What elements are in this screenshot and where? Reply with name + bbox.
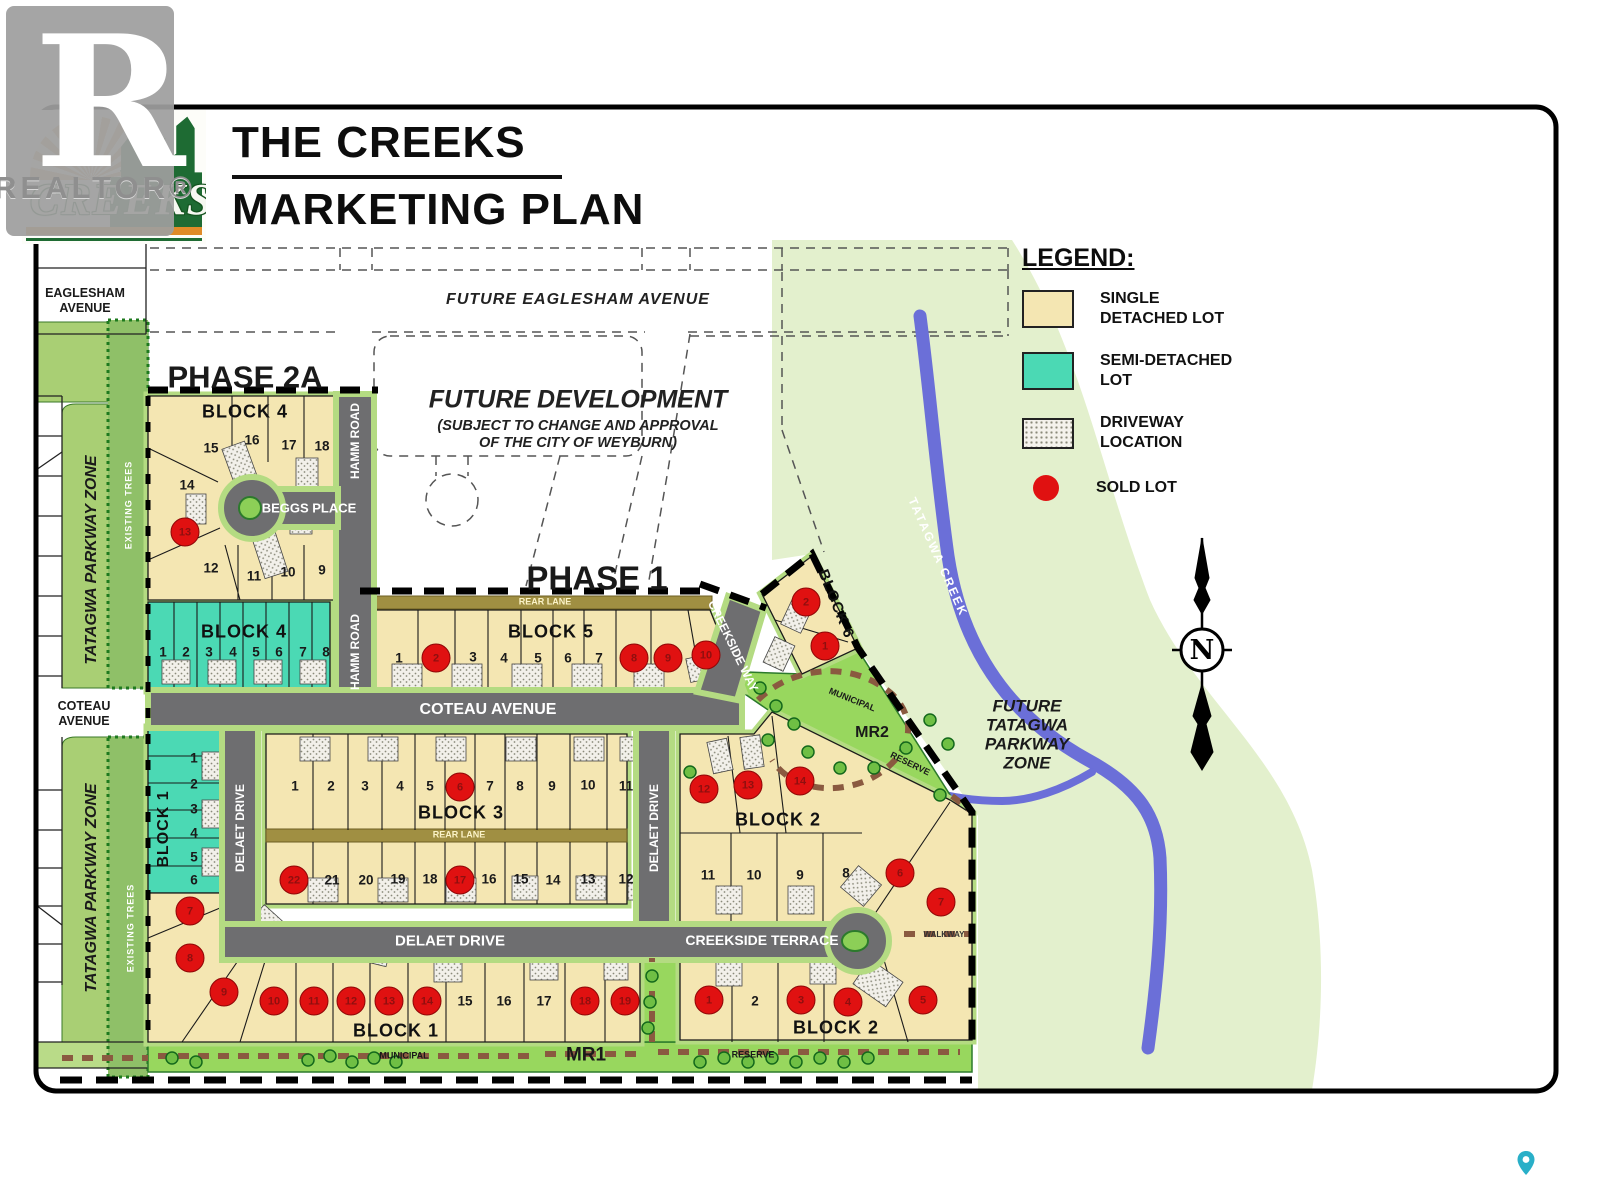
lot-number: 6: [275, 645, 283, 660]
future-eaglesham-label: FUTURE EAGLESHAM AVENUE: [446, 292, 710, 308]
sold-lot-marker: 9: [654, 644, 683, 673]
beggs-place-label: BEGGS PLACE: [262, 502, 357, 515]
lot-number: 17: [281, 438, 296, 453]
block-label: BLOCK 2: [793, 1018, 879, 1039]
sold-lot-marker: 14: [786, 767, 815, 796]
future-tatagwa-label: TATAGWA: [986, 717, 1068, 734]
coteau-avenue-label: COTEAU AVENUE: [420, 702, 557, 718]
sold-lot-marker: 10: [692, 641, 721, 670]
hamm-road-label: HAMM ROAD: [349, 614, 361, 690]
delaet-drive-label: DELAET DRIVE: [395, 934, 505, 949]
lot-number: 4: [500, 651, 508, 666]
lot-number: 9: [796, 868, 804, 883]
existing-trees-label: EXISTING TREES: [125, 461, 134, 550]
lot-number: 3: [361, 779, 369, 794]
lot-number: 15: [457, 994, 472, 1009]
block-label: BLOCK 3: [418, 803, 504, 824]
walkway-label: WALKWAY: [923, 931, 964, 939]
lot-number: 2: [327, 779, 335, 794]
sold-lot-marker: 14: [413, 987, 442, 1016]
legend-item-semi-detached: SEMI-DETACHED LOT: [1022, 351, 1232, 391]
sold-lot-marker: 1: [811, 632, 840, 661]
lot-number: 3: [469, 650, 477, 665]
delaet-drive-west-label: DELAET DRIVE: [234, 784, 246, 872]
lot-number: 6: [190, 873, 198, 888]
lot-number: 1: [159, 645, 167, 660]
sold-lot-marker: 2: [422, 644, 451, 673]
delaet-drive-east-label: DELAET DRIVE: [648, 784, 660, 872]
sold-lot-marker: 6: [446, 773, 475, 802]
lot-number: 12: [618, 872, 633, 887]
legend: LEGEND: SINGLE DETACHED LOT SEMI-DETACHE…: [1022, 244, 1232, 523]
lot-number: 7: [299, 645, 307, 660]
lot-number: 5: [426, 779, 434, 794]
lot-number: 2: [182, 645, 190, 660]
coteau-avenue-west-label: AVENUE: [58, 715, 109, 728]
sold-lot-marker: 13: [375, 987, 404, 1016]
future-tatagwa-label: PARKWAY: [985, 736, 1069, 753]
lot-number: 16: [244, 433, 259, 448]
sold-lot-marker: 4: [834, 988, 863, 1017]
hamm-road-label: HAMM ROAD: [349, 403, 361, 479]
future-development-sub1: (SUBJECT TO CHANGE AND APPROVAL: [437, 419, 718, 434]
lot-number: 1: [190, 751, 198, 766]
driveway-swatch: [1022, 418, 1074, 449]
sold-lot-marker: 17: [446, 866, 475, 895]
lot-number: 21: [324, 873, 339, 888]
lot-number: 18: [422, 872, 437, 887]
mr2-label: MR2: [855, 725, 889, 741]
lot-number: 12: [203, 561, 218, 576]
title-line-2: MARKETING PLAN: [232, 185, 644, 235]
realtor-label: REALTOR®: [0, 170, 196, 206]
existing-trees-label: EXISTING TREES: [127, 884, 136, 973]
lot-number: 9: [318, 563, 326, 578]
lot-number: 5: [534, 651, 542, 666]
mr1-municipal-label: MUNICIPAL: [379, 1052, 428, 1061]
mr1-label: MR1: [566, 1046, 606, 1065]
lot-number: 10: [580, 778, 595, 793]
legend-label: DRIVEWAY: [1100, 413, 1184, 433]
sold-lot-marker: 19: [611, 987, 640, 1016]
lot-number: 3: [205, 645, 213, 660]
legend-label: SOLD LOT: [1096, 478, 1177, 498]
legend-label: LOCATION: [1100, 433, 1184, 453]
future-tatagwa-label: ZONE: [1003, 755, 1050, 772]
lot-number: 2: [190, 777, 198, 792]
north-letter: N: [1190, 635, 1215, 666]
lot-number: 15: [203, 441, 218, 456]
title-underline: [232, 175, 562, 179]
lot-number: 10: [746, 868, 761, 883]
lot-number: 14: [545, 873, 560, 888]
tatagwa-parkway-zone-label: TATAGWA PARKWAY ZONE: [84, 783, 100, 992]
sold-lot-marker: 18: [571, 987, 600, 1016]
sold-lot-marker: 2: [792, 588, 821, 617]
legend-item-sold: SOLD LOT: [1022, 475, 1232, 501]
lot-number: 17: [536, 994, 551, 1009]
rear-lane-label: REAR LANE: [519, 598, 572, 607]
rear-lane-label: REAR LANE: [433, 831, 486, 840]
sold-lot-marker: 1: [695, 986, 724, 1015]
lot-number: 11: [701, 868, 715, 883]
sold-lot-marker: 12: [337, 987, 366, 1016]
lot-number: 15: [513, 872, 528, 887]
lot-number: 1: [395, 651, 403, 666]
lot-number: 7: [595, 651, 603, 666]
legend-label: SEMI-DETACHED: [1100, 351, 1232, 371]
creekside-terrace-label: CREEKSIDE TERRACE: [685, 933, 838, 947]
title-line-1: THE CREEKS: [232, 118, 644, 168]
lot-number: 13: [580, 872, 595, 887]
block-label: BLOCK 4: [202, 402, 288, 423]
sold-lot-marker: 6: [886, 859, 915, 888]
block-label: BLOCK 5: [508, 622, 594, 643]
sold-lot-marker: 12: [690, 775, 719, 804]
legend-label: LOT: [1100, 371, 1232, 391]
future-tatagwa-label: FUTURE: [993, 698, 1062, 715]
sold-lot-marker: 13: [734, 771, 763, 800]
lot-number: 5: [252, 645, 260, 660]
lot-number: 4: [190, 826, 198, 841]
lot-number: 4: [396, 779, 404, 794]
legend-label: DETACHED LOT: [1100, 309, 1224, 329]
lot-number: 8: [842, 866, 850, 881]
future-development-title: FUTURE DEVELOPMENT: [429, 388, 728, 413]
phase-1-label: PHASE 1: [526, 562, 667, 595]
lot-number: 5: [190, 850, 198, 865]
lot-number: 2: [751, 994, 759, 1009]
future-development-sub2: OF THE CITY OF WEYBURN): [479, 436, 677, 451]
sold-lot-marker: 3: [787, 986, 816, 1015]
sold-lot-swatch: [1033, 475, 1059, 501]
lot-number: 19: [390, 872, 405, 887]
lot-number: 6: [564, 651, 572, 666]
lot-number: 3: [190, 802, 198, 817]
lot-number: 9: [548, 779, 556, 794]
semi-detached-swatch: [1022, 352, 1074, 390]
lot-number: 16: [496, 994, 511, 1009]
lot-number: 20: [358, 873, 373, 888]
lot-number: 11: [619, 779, 633, 794]
sold-lot-marker: 13: [171, 518, 200, 547]
lot-number: 11: [247, 569, 261, 584]
sold-lot-marker: 11: [300, 987, 329, 1016]
mr1-reserve-label: RESERVE: [732, 1051, 775, 1060]
sold-lot-marker: 22: [280, 866, 309, 895]
lot-number: 16: [481, 872, 496, 887]
lot-number: 8: [322, 645, 330, 660]
legend-label: SINGLE: [1100, 289, 1224, 309]
block-label: BLOCK 4: [201, 622, 287, 643]
block-label: BLOCK 1: [353, 1021, 439, 1042]
tatagwa-parkway-zone-label: TATAGWA PARKWAY ZONE: [84, 455, 100, 664]
eaglesham-avenue-label: EAGLESHAM: [45, 287, 125, 300]
coteau-avenue-west-label: COTEAU: [58, 700, 111, 713]
phase-2a-label: PHASE 2A: [167, 362, 322, 393]
lot-number: 4: [229, 645, 237, 660]
sold-lot-marker: 8: [176, 944, 205, 973]
page-title: THE CREEKS MARKETING PLAN: [232, 118, 644, 235]
sold-lot-marker: 7: [176, 897, 205, 926]
legend-item-single-detached: SINGLE DETACHED LOT: [1022, 289, 1232, 329]
lot-number: 14: [179, 478, 194, 493]
block-label: BLOCK 2: [735, 810, 821, 831]
sold-lot-marker: 7: [927, 888, 956, 917]
sold-lot-marker: 10: [260, 987, 289, 1016]
single-detached-swatch: [1022, 290, 1074, 328]
block-label: BLOCK 1: [155, 790, 173, 867]
lot-number: 10: [280, 565, 295, 580]
marketing-plan-page: { "watermark": { "label": "REALTOR®" }, …: [0, 0, 1600, 1200]
sold-lot-marker: 9: [210, 978, 239, 1007]
lot-number: 1: [291, 779, 299, 794]
sold-lot-marker: 5: [909, 986, 938, 1015]
creeks-logo-bar-green: [26, 238, 202, 241]
lot-number: 8: [516, 779, 524, 794]
eaglesham-avenue-label: AVENUE: [59, 302, 110, 315]
sold-lot-marker: 8: [620, 644, 649, 673]
legend-heading: LEGEND:: [1022, 244, 1232, 273]
lot-number: 18: [314, 439, 329, 454]
legend-item-driveway: DRIVEWAY LOCATION: [1022, 413, 1232, 453]
lot-number: 7: [486, 779, 494, 794]
